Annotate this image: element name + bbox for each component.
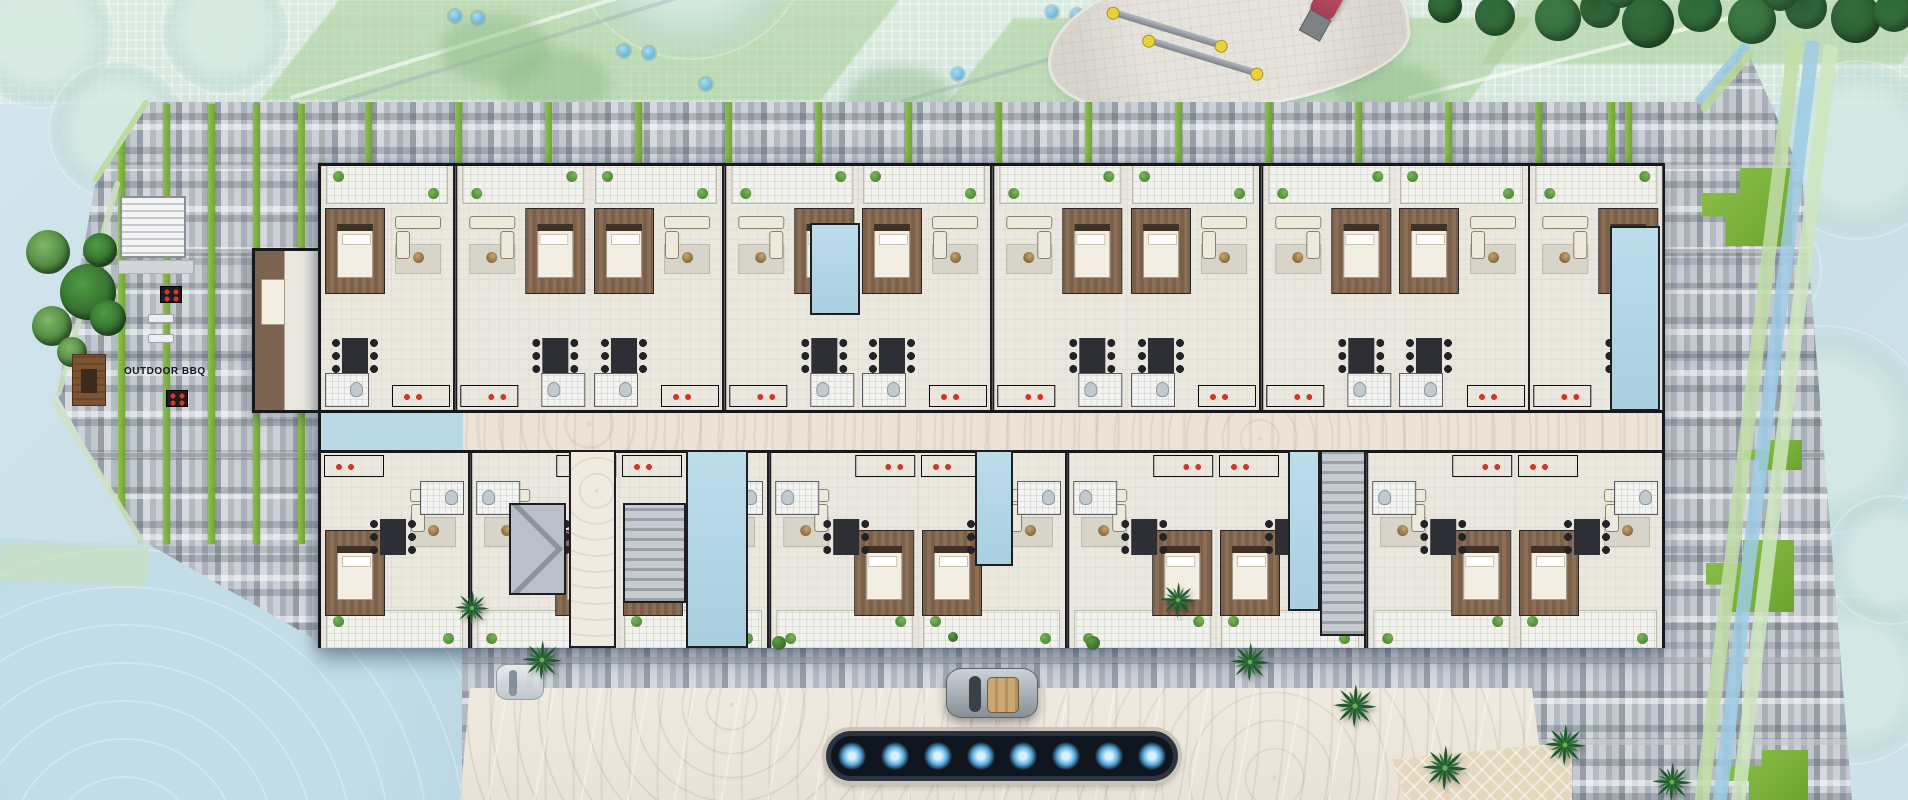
palm-tree-icon bbox=[1542, 722, 1588, 768]
living-room bbox=[1532, 208, 1596, 314]
dining-table bbox=[1417, 517, 1469, 557]
decor bbox=[455, 591, 489, 625]
planter-stripe bbox=[1265, 102, 1272, 168]
light-well bbox=[686, 450, 748, 648]
light-well bbox=[810, 223, 860, 315]
balcony bbox=[326, 166, 448, 204]
bathroom bbox=[1399, 373, 1443, 407]
bench-icon bbox=[148, 334, 174, 343]
planter-stripe bbox=[995, 102, 1002, 168]
balcony bbox=[863, 166, 985, 204]
decor bbox=[1160, 582, 1196, 618]
shrub-icon bbox=[472, 12, 484, 24]
bed bbox=[538, 224, 574, 278]
coffee-table bbox=[1292, 252, 1303, 263]
apartment-unit bbox=[992, 166, 1126, 410]
pool-light bbox=[1052, 742, 1080, 770]
apartment-unit bbox=[590, 166, 724, 410]
coffee-table bbox=[1488, 252, 1499, 263]
planter-stripe bbox=[1355, 102, 1362, 168]
dining-table bbox=[798, 336, 850, 376]
bench-icon bbox=[148, 314, 174, 323]
pool-light bbox=[1138, 742, 1166, 770]
dining-table bbox=[1403, 336, 1455, 376]
living-room bbox=[656, 208, 720, 314]
planter-stripe bbox=[1535, 102, 1542, 168]
decor bbox=[1230, 642, 1270, 682]
kitchen bbox=[622, 455, 682, 477]
living-room bbox=[1193, 208, 1257, 314]
decor bbox=[1333, 684, 1376, 727]
palm-tree-icon bbox=[1420, 743, 1470, 793]
sofa bbox=[395, 216, 441, 229]
bedroom bbox=[1331, 208, 1391, 294]
planter-stripe bbox=[1625, 102, 1632, 168]
sofa bbox=[738, 216, 784, 229]
grove-tree-icon bbox=[83, 233, 117, 267]
apartment-unit bbox=[1395, 166, 1529, 410]
sofa bbox=[664, 216, 710, 229]
dining-table bbox=[866, 336, 918, 376]
bathroom bbox=[1347, 373, 1391, 407]
apartment-unit bbox=[858, 166, 992, 410]
kitchen bbox=[1533, 385, 1591, 407]
coffee-table bbox=[682, 252, 693, 263]
bedroom bbox=[325, 208, 385, 294]
shoreline-path bbox=[0, 542, 149, 585]
sofa bbox=[1542, 216, 1588, 229]
sofa bbox=[1006, 216, 1052, 229]
planter-stripe bbox=[545, 102, 552, 168]
pergola-walk bbox=[118, 260, 194, 274]
balcony bbox=[1535, 166, 1657, 204]
bathroom bbox=[1073, 481, 1117, 515]
living-room bbox=[1265, 208, 1329, 314]
wood-deck-table bbox=[72, 354, 106, 406]
palm-tree-icon bbox=[1228, 640, 1272, 684]
kitchen bbox=[1266, 385, 1324, 407]
coffee-table bbox=[1219, 252, 1230, 263]
decor bbox=[1652, 762, 1692, 800]
balcony bbox=[1268, 166, 1390, 204]
shrub-icon bbox=[449, 10, 461, 22]
palm-shadow bbox=[440, 14, 550, 84]
bedroom bbox=[1399, 208, 1459, 294]
coffee-table bbox=[1397, 525, 1408, 536]
shrub-icon bbox=[772, 636, 786, 650]
light-well bbox=[1610, 226, 1660, 411]
bathroom bbox=[594, 373, 638, 407]
corridor-water-segment bbox=[321, 413, 463, 450]
bedroom bbox=[862, 208, 922, 294]
decor bbox=[522, 640, 562, 680]
apartment-unit bbox=[1515, 453, 1662, 648]
coffee-table bbox=[1559, 252, 1570, 263]
coffee-table bbox=[755, 252, 766, 263]
bathroom bbox=[1372, 481, 1416, 515]
pool-light bbox=[967, 742, 995, 770]
bathroom bbox=[542, 373, 586, 407]
living-room bbox=[459, 208, 523, 314]
balcony bbox=[731, 166, 853, 204]
living-room bbox=[1462, 208, 1526, 314]
coffee-table bbox=[1622, 525, 1633, 536]
kitchen bbox=[729, 385, 787, 407]
sofa bbox=[932, 216, 978, 229]
kitchen bbox=[661, 385, 719, 407]
bed bbox=[606, 224, 642, 278]
coffee-table bbox=[800, 525, 811, 536]
planter-stripe bbox=[208, 104, 215, 544]
dining-table bbox=[1067, 336, 1119, 376]
balcony bbox=[999, 166, 1121, 204]
planter-stripe bbox=[365, 102, 372, 168]
bed bbox=[874, 224, 910, 278]
shrub-icon bbox=[1086, 636, 1100, 650]
planter-stripe bbox=[635, 102, 642, 168]
apartment-unit bbox=[769, 453, 918, 648]
shrub-icon bbox=[1046, 6, 1058, 18]
shrub-icon bbox=[618, 45, 630, 57]
balcony bbox=[1400, 166, 1522, 204]
bathroom bbox=[862, 373, 906, 407]
dining-table bbox=[329, 336, 381, 376]
apartment-unit bbox=[1366, 453, 1515, 648]
grove-tree-icon bbox=[26, 230, 70, 274]
car-icon bbox=[946, 668, 1038, 718]
decor bbox=[1423, 746, 1468, 791]
shrub-icon bbox=[952, 68, 964, 80]
kitchen bbox=[460, 385, 518, 407]
bathroom bbox=[1079, 373, 1123, 407]
pool-light bbox=[924, 742, 952, 770]
planter-stripe bbox=[1445, 102, 1452, 168]
bed bbox=[1343, 224, 1379, 278]
dining-table bbox=[598, 336, 650, 376]
kitchen bbox=[1467, 385, 1525, 407]
kitchen bbox=[855, 455, 915, 477]
kitchen bbox=[997, 385, 1055, 407]
balcony bbox=[1132, 166, 1254, 204]
kitchen bbox=[324, 455, 384, 477]
balcony bbox=[462, 166, 584, 204]
grove-tree-icon bbox=[90, 300, 126, 336]
playground-slide bbox=[1306, 0, 1366, 26]
shrub-icon bbox=[643, 47, 655, 59]
bedroom bbox=[1131, 208, 1191, 294]
dining-table bbox=[1561, 517, 1613, 557]
stair-core bbox=[623, 503, 686, 603]
marble-core bbox=[569, 450, 616, 648]
bbq-grill-icon bbox=[166, 390, 188, 407]
sofa bbox=[469, 216, 515, 229]
bbq-grill-icon bbox=[160, 286, 182, 303]
pergola-canopy bbox=[120, 196, 186, 258]
bedroom bbox=[594, 208, 654, 294]
light-well bbox=[975, 450, 1013, 566]
kitchen bbox=[1153, 455, 1213, 477]
bathroom bbox=[1131, 373, 1175, 407]
kitchen bbox=[1518, 455, 1578, 477]
living-room bbox=[996, 208, 1060, 314]
coffee-table bbox=[1098, 525, 1109, 536]
dining-table bbox=[530, 336, 582, 376]
living-room bbox=[924, 208, 988, 314]
kitchen bbox=[921, 455, 981, 477]
dining-table bbox=[820, 517, 872, 557]
bedroom bbox=[526, 208, 586, 294]
kitchen bbox=[1198, 385, 1256, 407]
shrub-icon bbox=[948, 632, 958, 642]
shrub-icon bbox=[700, 78, 712, 90]
bedroom bbox=[1063, 208, 1123, 294]
planter-stripe bbox=[1085, 102, 1092, 168]
apartment-building bbox=[318, 163, 1665, 648]
stair-core bbox=[1320, 450, 1366, 636]
bed bbox=[1143, 224, 1179, 278]
apartment-unit bbox=[1261, 166, 1395, 410]
kitchen bbox=[1452, 455, 1512, 477]
bathroom bbox=[1614, 481, 1658, 515]
outdoor-bbq-label: OUTDOOR BBQ bbox=[124, 366, 206, 377]
balcony bbox=[595, 166, 717, 204]
palm-tree-icon bbox=[520, 638, 564, 682]
bathroom bbox=[420, 481, 464, 515]
planter-stripe bbox=[455, 102, 462, 168]
bed bbox=[337, 224, 373, 278]
planter-stripe bbox=[163, 104, 170, 544]
kitchen bbox=[929, 385, 987, 407]
apartment-unit bbox=[321, 166, 455, 410]
apartment-unit bbox=[321, 453, 470, 648]
sofa bbox=[1470, 216, 1516, 229]
bed bbox=[1075, 224, 1111, 278]
bathroom bbox=[810, 373, 854, 407]
planter-stripe bbox=[815, 102, 822, 168]
coffee-table bbox=[486, 252, 497, 263]
sofa bbox=[1275, 216, 1321, 229]
site-plan-canvas: OUTDOOR BBQ bbox=[0, 0, 1908, 800]
kitchen bbox=[392, 385, 450, 407]
living-room bbox=[728, 208, 792, 314]
bathroom bbox=[325, 373, 369, 407]
dining-table bbox=[1335, 336, 1387, 376]
planter-stripe bbox=[905, 102, 912, 168]
apartment-unit bbox=[455, 166, 589, 410]
planter-stripe bbox=[1175, 102, 1182, 168]
lift-core bbox=[509, 503, 566, 595]
planter-stripe bbox=[725, 102, 732, 168]
sofa bbox=[1201, 216, 1247, 229]
building-annex-west bbox=[252, 248, 322, 413]
palm-tree-icon bbox=[453, 589, 491, 627]
light-well bbox=[1288, 450, 1320, 611]
dining-table bbox=[1135, 336, 1187, 376]
kitchen bbox=[1219, 455, 1279, 477]
dining-table bbox=[1118, 517, 1170, 557]
living-room bbox=[387, 208, 451, 314]
palm-tree-icon bbox=[1331, 682, 1379, 730]
reflecting-pool bbox=[826, 731, 1178, 781]
pool-light bbox=[881, 742, 909, 770]
bed bbox=[1411, 224, 1447, 278]
unit-row-north bbox=[321, 166, 1662, 413]
apartment-unit bbox=[1127, 166, 1261, 410]
pool-light bbox=[1095, 742, 1123, 770]
bathroom bbox=[775, 481, 819, 515]
pool-light bbox=[838, 742, 866, 770]
dining-table bbox=[367, 517, 419, 557]
palm-tree-icon bbox=[1650, 760, 1694, 800]
pool-light bbox=[1009, 742, 1037, 770]
decor bbox=[1544, 724, 1585, 765]
palm-tree-icon bbox=[1158, 580, 1198, 620]
central-corridor bbox=[321, 413, 1662, 450]
bathroom bbox=[1017, 481, 1061, 515]
